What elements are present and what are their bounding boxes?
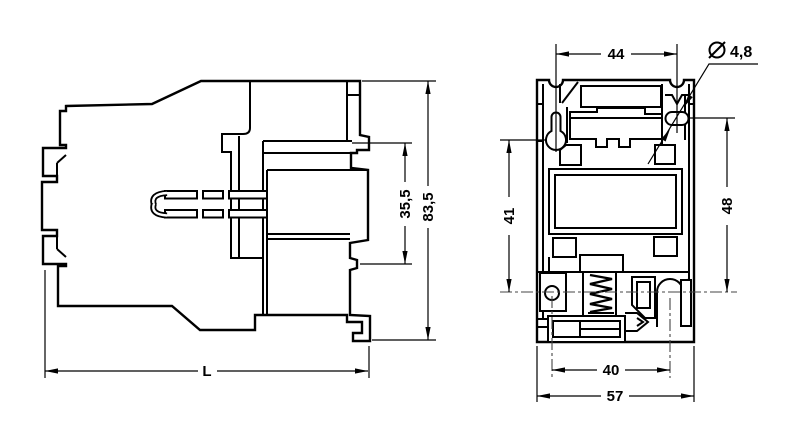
dim-label-L: L xyxy=(202,363,211,380)
latch-pocket-inner xyxy=(637,282,650,308)
terminal-pin-segment xyxy=(165,191,197,199)
dim-label-57: 57 xyxy=(607,388,624,405)
window-lower-left xyxy=(553,238,576,257)
contactor-dimension-drawing: 44 4,8 35,5 83,5 L xyxy=(0,0,800,446)
dim-label-355: 35,5 xyxy=(397,189,414,218)
right-clip-slot xyxy=(681,280,691,326)
top-cover-plate xyxy=(581,86,661,107)
dim-label-diameter: 4,8 xyxy=(730,44,752,61)
dim-label-40: 40 xyxy=(603,362,620,379)
coil-window-inner xyxy=(555,175,676,228)
terminal-pin-segment xyxy=(165,210,197,218)
spring-cap xyxy=(580,255,623,272)
dim-label-48: 48 xyxy=(719,198,736,215)
terminal-pin-segment xyxy=(203,210,223,218)
dim-label-41: 41 xyxy=(501,208,518,225)
terminal-pin-segment xyxy=(229,210,267,218)
drawing-canvas: 44 4,8 35,5 83,5 L xyxy=(0,0,800,446)
terminal-pin-segment xyxy=(229,191,267,199)
dim-label-835: 83,5 xyxy=(420,192,437,221)
window-upper-left xyxy=(560,145,581,165)
terminal-pin-segment xyxy=(203,191,223,199)
window-lower-right xyxy=(654,237,677,256)
dim-label-44: 44 xyxy=(608,46,625,63)
